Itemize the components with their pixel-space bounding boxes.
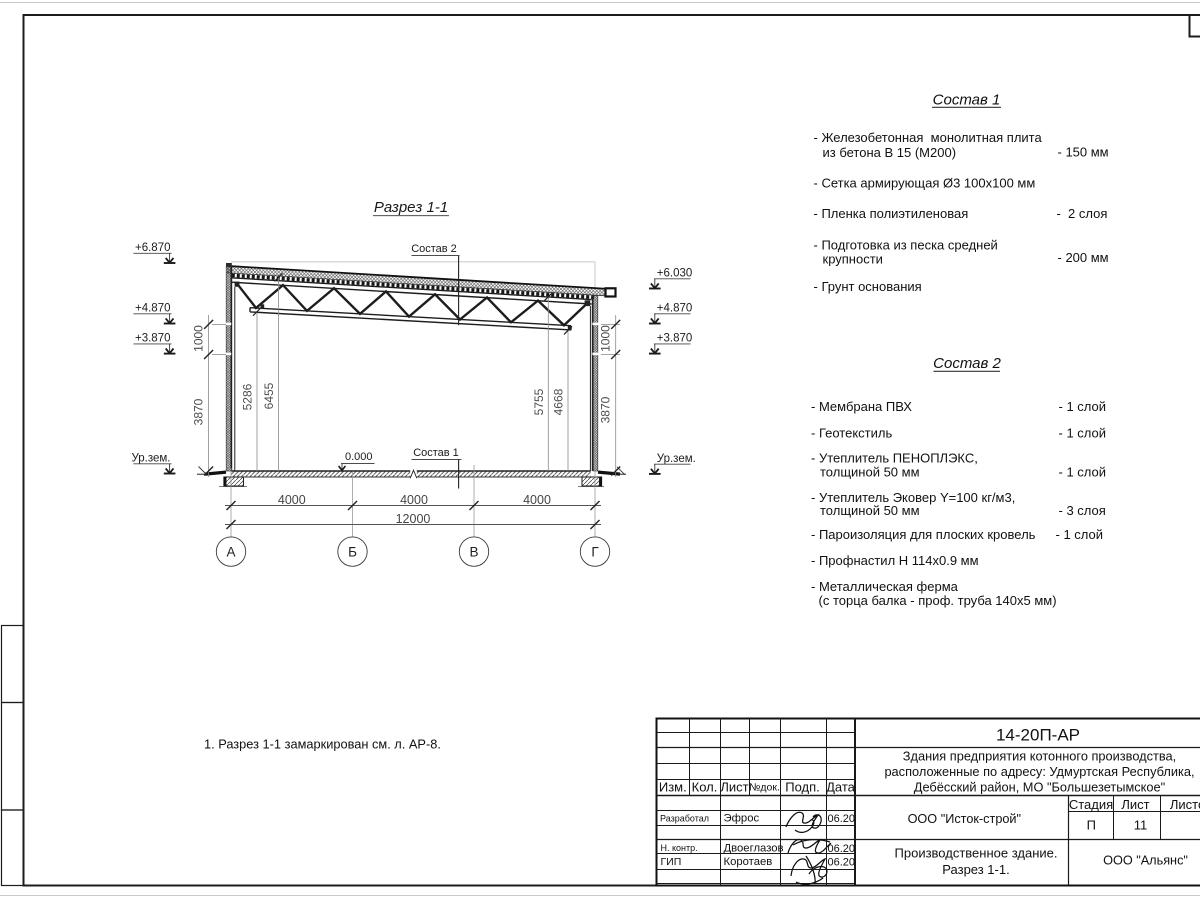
svg-text:- 3 слоя: - 3 слоя bbox=[1059, 503, 1106, 518]
svg-text:А: А bbox=[226, 544, 235, 559]
svg-text:Эфрос: Эфрос bbox=[724, 812, 760, 824]
svg-text:4668: 4668 bbox=[552, 388, 566, 415]
svg-text:- Пленка полиэтиленовая: - Пленка полиэтиленовая bbox=[814, 206, 969, 221]
svg-text:- Мембрана ПВХ: - Мембрана ПВХ bbox=[811, 399, 912, 414]
svg-text:Дата: Дата bbox=[826, 780, 856, 795]
svg-text:Коротаев: Коротаев bbox=[724, 856, 773, 868]
svg-text:+3.870: +3.870 bbox=[657, 333, 693, 345]
svg-text:- 1 слой: - 1 слой bbox=[1059, 426, 1107, 441]
svg-text:4000: 4000 bbox=[523, 493, 551, 507]
svg-text:Кол.: Кол. bbox=[692, 780, 718, 795]
svg-text:Разрез 1-1: Разрез 1-1 bbox=[374, 199, 448, 216]
svg-text:Стадия: Стадия bbox=[1069, 797, 1113, 812]
svg-text:- 1 слой: - 1 слой bbox=[1056, 527, 1104, 542]
svg-text:Ур.зем.: Ур.зем. bbox=[131, 453, 170, 465]
svg-text:Состав 2: Состав 2 bbox=[933, 355, 1001, 372]
svg-text:3870: 3870 bbox=[598, 396, 612, 423]
svg-text:+4.870: +4.870 bbox=[657, 303, 693, 315]
svg-text:Г: Г bbox=[591, 544, 599, 559]
svg-text:- Металлическая ферма: - Металлическая ферма bbox=[811, 579, 959, 594]
svg-text:- Грунт основания: - Грунт основания bbox=[814, 279, 922, 294]
svg-text:5755: 5755 bbox=[532, 388, 546, 415]
svg-text:из бетона В 15 (М200): из бетона В 15 (М200) bbox=[823, 145, 957, 160]
svg-text:Здания предприятия котонного п: Здания предприятия котонного производств… bbox=[903, 748, 1176, 763]
svg-text:Состав 1: Состав 1 bbox=[933, 91, 1001, 108]
svg-text:- Профнастил Н 114х0.9 мм: - Профнастил Н 114х0.9 мм bbox=[811, 553, 979, 568]
svg-text:11: 11 bbox=[1134, 817, 1148, 832]
svg-text:- Железобетонная монолитная п: - Железобетонная монолитная плита bbox=[814, 130, 1043, 145]
svg-text:ООО "Исток-строй": ООО "Исток-строй" bbox=[908, 812, 1021, 826]
svg-text:1000: 1000 bbox=[191, 325, 205, 352]
svg-text:ООО "Альянс": ООО "Альянс" bbox=[1103, 853, 1188, 867]
svg-text:0.000: 0.000 bbox=[345, 451, 373, 463]
svg-text:12000: 12000 bbox=[396, 512, 431, 526]
svg-text:06.20: 06.20 bbox=[828, 813, 856, 825]
svg-text:5286: 5286 bbox=[241, 383, 255, 410]
svg-text:крупности: крупности bbox=[823, 252, 883, 267]
svg-text:ГИП: ГИП bbox=[661, 856, 682, 868]
svg-text:06.20: 06.20 bbox=[828, 857, 856, 869]
svg-text:+4.870: +4.870 bbox=[135, 303, 171, 315]
svg-text:Б: Б bbox=[348, 544, 357, 559]
svg-text:№док.: №док. bbox=[749, 782, 780, 794]
svg-text:+6.870: +6.870 bbox=[135, 242, 171, 254]
svg-text:1000: 1000 bbox=[598, 325, 612, 352]
svg-text:6455: 6455 bbox=[262, 382, 276, 409]
svg-text:4000: 4000 bbox=[400, 493, 428, 507]
svg-text:4000: 4000 bbox=[278, 493, 306, 507]
svg-text:+3.870: +3.870 bbox=[135, 333, 171, 345]
svg-text:Дебёсский район, МО "Большезет: Дебёсский район, МО "Большезетымское" bbox=[914, 779, 1165, 794]
svg-text:- Сетка армирующая Ø3 100х100: - Сетка армирующая Ø3 100х100 мм bbox=[814, 175, 1036, 190]
svg-text:- 1 слой: - 1 слой bbox=[1059, 399, 1107, 414]
svg-text:- Пароизоляция для плоских кро: - Пароизоляция для плоских кровель bbox=[811, 527, 1036, 542]
svg-text:толщиной 50 мм: толщиной 50 мм bbox=[820, 465, 920, 480]
svg-text:Подп.: Подп. bbox=[785, 780, 820, 795]
svg-text:3870: 3870 bbox=[191, 398, 205, 425]
svg-text:Разрез 1-1.: Разрез 1-1. bbox=[942, 862, 1009, 877]
svg-text:В: В bbox=[469, 544, 478, 559]
svg-text:Разработал: Разработал bbox=[660, 813, 709, 823]
svg-text:- 150 мм: - 150 мм bbox=[1058, 144, 1109, 159]
svg-text:- Геотекстиль: - Геотекстиль bbox=[811, 426, 892, 441]
svg-text:Состав 1: Состав 1 bbox=[413, 447, 459, 459]
svg-text:Листов: Листов bbox=[1170, 797, 1200, 812]
svg-text:14-20П-АР: 14-20П-АР bbox=[996, 726, 1080, 745]
svg-text:П: П bbox=[1087, 817, 1096, 832]
svg-text:Ур.зем.: Ур.зем. bbox=[657, 453, 696, 465]
svg-text:Н. контр.: Н. контр. bbox=[661, 843, 698, 853]
svg-text:расположенные по адресу: Удмур: расположенные по адресу: Удмуртская Респ… bbox=[884, 764, 1194, 779]
svg-text:06.20: 06.20 bbox=[828, 843, 856, 855]
svg-text:Лист: Лист bbox=[1121, 797, 1149, 812]
svg-text:- 2 слоя: - 2 слоя bbox=[1057, 206, 1108, 221]
svg-text:Производственное здание.: Производственное здание. bbox=[895, 845, 1058, 860]
svg-text:1. Разрез 1-1 замаркирован см.: 1. Разрез 1-1 замаркирован см. л. АР-8. bbox=[204, 737, 441, 752]
svg-text:- 1 слой: - 1 слой bbox=[1059, 465, 1107, 480]
svg-text:- Подготовка из песка средней: - Подготовка из песка средней bbox=[814, 237, 998, 252]
svg-text:Двоеглазов: Двоеглазов bbox=[724, 843, 784, 855]
svg-text:Изм.: Изм. bbox=[659, 780, 687, 795]
svg-text:(с торца балка - проф. труба 1: (с торца балка - проф. труба 140х5 мм) bbox=[819, 593, 1057, 608]
svg-text:Состав 2: Состав 2 bbox=[411, 243, 457, 255]
svg-text:+6.030: +6.030 bbox=[657, 268, 693, 280]
svg-text:толщиной 50 мм: толщиной 50 мм bbox=[820, 503, 920, 518]
svg-text:Лист: Лист bbox=[720, 780, 748, 795]
svg-text:- 200 мм: - 200 мм bbox=[1058, 250, 1109, 265]
svg-text:- Утеплитель ПЕНОПЛЭКС,: - Утеплитель ПЕНОПЛЭКС, bbox=[811, 451, 978, 466]
